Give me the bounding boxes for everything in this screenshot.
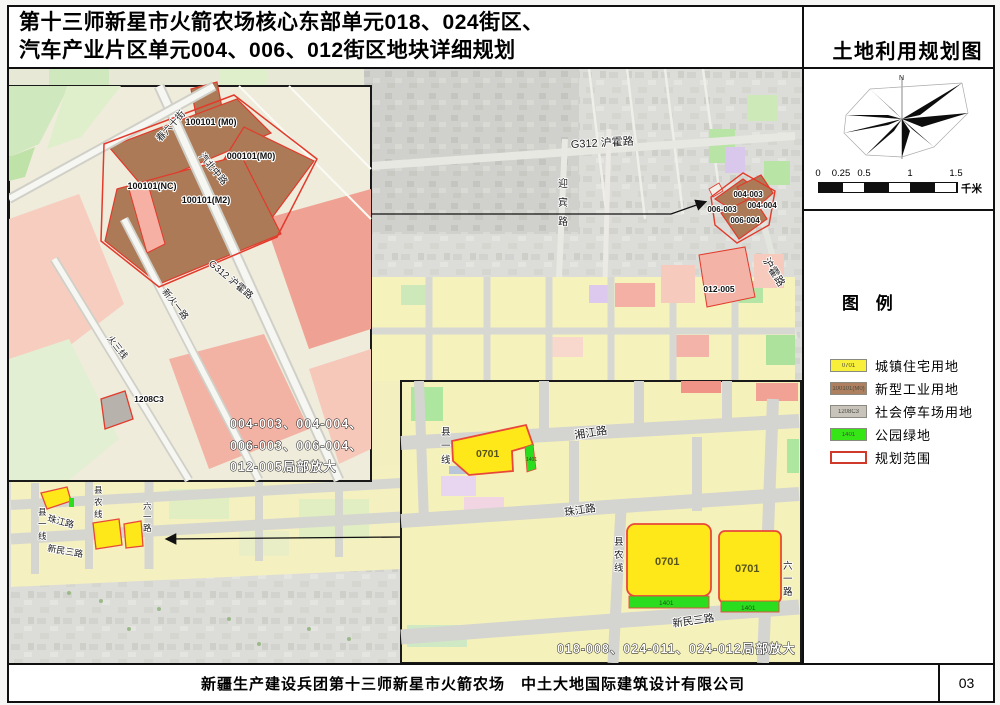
inset-right xyxy=(401,381,801,663)
inset-right-parcel-0701-b: 0701 xyxy=(655,556,679,568)
inset-left-parcel-m0a: 100101 (M0) xyxy=(185,117,236,127)
sheet-title-line2: 汽车产业片区单元004、006、012街区地块详细规划 xyxy=(19,37,544,65)
scale-tick-05: 0.5 xyxy=(857,168,870,179)
legend-swatch-green: 1401 xyxy=(830,428,867,441)
inset-right-parcel-0701-a: 0701 xyxy=(476,448,500,460)
scale-bar-segment xyxy=(911,183,934,192)
inset-left-parcel-nc: 100101(NC) xyxy=(127,181,176,191)
sheet-title-line1: 第十三师新星市火箭农场核心东部单元018、024街区、 xyxy=(19,9,544,37)
legend-item-green: 1401 公园绿地 xyxy=(830,428,973,441)
farmland-top-strip xyxy=(9,69,364,86)
parcel-label-012-005: 012-005 xyxy=(703,284,734,294)
legend-swatch-industrial: 100101(M0) xyxy=(830,382,867,395)
scale-tick-15: 1.5 xyxy=(949,168,962,179)
footer-company: 新疆生产建设兵团第十三师新星市火箭农场 中土大地国际建筑设计有限公司 xyxy=(9,665,937,701)
legend-item-industrial: 100101(M0) 新型工业用地 xyxy=(830,382,973,395)
sheet-title: 第十三师新星市火箭农场核心东部单元018、024街区、 汽车产业片区单元004、… xyxy=(19,9,544,66)
legend-item-parking: 1208C3 社会停车场用地 xyxy=(830,405,973,418)
legend-item-residential: 0701 城镇住宅用地 xyxy=(830,359,973,372)
compass-scale-box: N 0 0.25 0.5 1 1.5 千米 xyxy=(804,69,993,211)
parcel-label-004-004: 004-004 xyxy=(747,201,777,210)
street-label-xiannong: 县农线 xyxy=(94,485,103,519)
legend-label-industrial: 新型工业用地 xyxy=(875,379,959,398)
map-title-cell: 土地利用规划图 xyxy=(802,7,993,69)
page-number: 03 xyxy=(938,665,993,701)
scale-bar-segment xyxy=(842,183,865,192)
inset-right-parcel-1401-b: 1401 xyxy=(659,600,674,607)
parcel-label-006-003: 006-003 xyxy=(707,205,737,214)
scale-bar xyxy=(818,182,958,193)
right-panel: N 0 0.25 0.5 1 1.5 千米 图 例 0701 城镇住宅用地 xyxy=(804,69,993,663)
legend-label-boundary: 规划范围 xyxy=(875,448,931,467)
inset-left-parcel-m2: 100101(M2) xyxy=(182,195,231,205)
map-canvas: G312 沪霍路 迎宾路 沪霍路 004-003 004-004 006-003… xyxy=(9,69,802,663)
scale-bar-segment xyxy=(865,183,888,192)
legend-label-residential: 城镇住宅用地 xyxy=(875,356,959,375)
scale-unit: 千米 xyxy=(961,181,982,196)
inset-left-parcel-gray: 1208C3 xyxy=(134,394,164,404)
footer-bar: 新疆生产建设兵团第十三师新星市火箭农场 中土大地国际建筑设计有限公司 03 xyxy=(9,663,993,701)
inset-left-caption-2: 006-003、006-004、 xyxy=(230,439,363,453)
inset-left-parcel-m0b: 000101(M0) xyxy=(227,151,276,161)
inset-right-parcel-1401-a: 1401 xyxy=(526,457,537,463)
parcel-label-004-003: 004-003 xyxy=(733,190,763,199)
parcel-label-006-004: 006-004 xyxy=(730,216,760,225)
legend-item-boundary: 规划范围 xyxy=(830,451,973,464)
map-title: 土地利用规划图 xyxy=(833,35,984,64)
street-label-xianyi: 县一线 xyxy=(38,507,47,541)
legend-swatch-boundary xyxy=(830,451,867,464)
north-label: N xyxy=(899,75,904,82)
compass-rose: N xyxy=(810,71,990,163)
scale-bar-segment xyxy=(934,183,957,192)
scale-tick-025: 0.25 xyxy=(832,168,851,179)
legend-swatch-parking: 1208C3 xyxy=(830,405,867,418)
road-label-yingbin: 迎宾路 xyxy=(558,178,568,228)
inset-right-road-liuyi: 六一路 xyxy=(783,560,793,598)
street-label-liuyi: 六一路 xyxy=(143,501,152,533)
sheet-frame: 第十三师新星市火箭农场核心东部单元018、024街区、 汽车产业片区单元004、… xyxy=(7,5,995,703)
inset-right-parcel-0701-c: 0701 xyxy=(735,563,759,575)
legend-label-green: 公园绿地 xyxy=(875,425,931,444)
legend-swatch-residential: 0701 xyxy=(830,359,867,372)
legend-title: 图 例 xyxy=(842,289,899,314)
compass-petals xyxy=(844,83,968,157)
legend-label-parking: 社会停车场用地 xyxy=(875,402,973,421)
inset-left-caption-1: 004-003、004-004、 xyxy=(230,417,363,431)
scale-bar-segment xyxy=(888,183,911,192)
inset-right-road-xiannong: 县农线 xyxy=(614,537,624,574)
inset-left-caption-3: 012-005局部放大 xyxy=(230,459,337,474)
scale-tick-1: 1 xyxy=(907,168,912,179)
title-block: 第十三师新星市火箭农场核心东部单元018、024街区、 汽车产业片区单元004、… xyxy=(9,7,802,69)
scale-tick-0: 0 xyxy=(815,168,820,179)
inset-right-road-xianyi: 县一线 xyxy=(441,427,451,466)
scale-bar-segment xyxy=(819,183,842,192)
legend: 图 例 0701 城镇住宅用地 100101(M0) 新型工业用地 1208C3… xyxy=(804,211,993,663)
inset-right-caption: 018-008、024-011、024-012局部放大 xyxy=(557,641,796,656)
inset-right-parcel-1401-c: 1401 xyxy=(741,605,756,612)
